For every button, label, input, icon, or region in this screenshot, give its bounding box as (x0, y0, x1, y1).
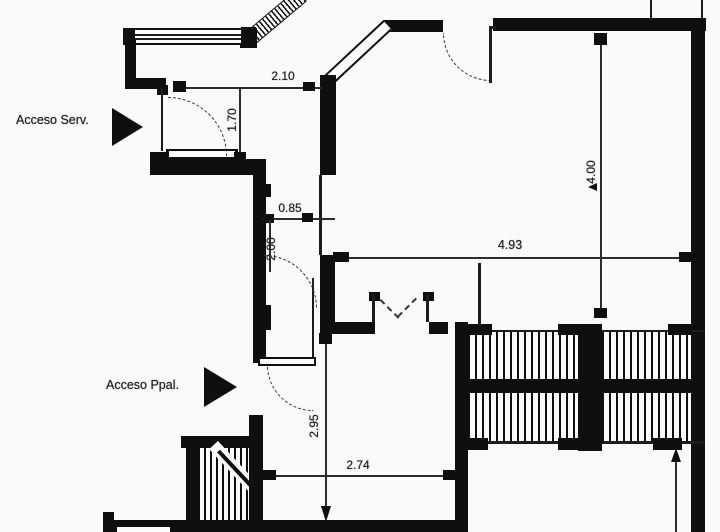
wall-right (691, 18, 705, 532)
window-glazing-line (133, 34, 246, 36)
door-jamb-hook (489, 26, 496, 29)
door-jamb-top-room (489, 26, 492, 83)
stairs-flight-upper-left (468, 332, 578, 380)
dimension-arrow-icon (671, 448, 681, 462)
dimension-tick (443, 470, 456, 480)
dimension-tick (679, 252, 692, 262)
dimension-tick (594, 308, 607, 318)
wall-stairwell-left (455, 322, 468, 532)
dimension-tick (594, 33, 607, 45)
dimension-line-2-95 (325, 333, 327, 513)
door-hinge-block-upper (253, 184, 271, 197)
dimension-tick (263, 470, 276, 480)
wall-bottom-stub (103, 512, 114, 532)
wall-stairwell-bottom-b (558, 438, 602, 450)
dimension-line-bottom-right (675, 462, 677, 532)
dimension-tick (303, 82, 315, 91)
door-swing-top-room (443, 33, 491, 81)
dimension-line-2-74 (263, 475, 453, 477)
dimension-label-2-74: 2.74 (337, 458, 379, 472)
door-swing-service (168, 97, 227, 156)
dimension-label-2-95: 2.95 (307, 406, 321, 446)
wall-line-top-notch-right (701, 0, 703, 19)
wall-line-top-notch-left (650, 0, 652, 19)
wall-hall-top-horizontal (156, 159, 266, 175)
dimension-label-1-70: 1.70 (225, 100, 239, 140)
stairs-flight-lower-left (468, 391, 578, 441)
door-hinge-block-lower (253, 305, 271, 330)
wall-corridor-vertical (320, 75, 336, 175)
window-bottom (117, 525, 170, 532)
label-acceso-serv: Acceso Serv. (16, 113, 111, 127)
dimension-tick (173, 81, 186, 92)
wall-stairwell-divider (578, 324, 602, 451)
wall-top-middle (383, 20, 443, 32)
dimension-label-2-00: 2.00 (264, 229, 278, 269)
dimension-line-4-93 (335, 257, 691, 259)
door-jamb-left (372, 294, 375, 322)
dimension-label-0-85: 0.85 (270, 201, 310, 215)
label-acceso-ppal: Acceso Ppal. (106, 378, 201, 392)
door-swing-entry (267, 365, 313, 411)
wall-entry-right (249, 415, 263, 532)
dimension-line-1-70 (239, 88, 241, 160)
dimension-line-2-10 (178, 87, 322, 89)
dimension-tick (319, 333, 332, 344)
wall-top-right (493, 18, 706, 31)
entry-threshold (258, 357, 316, 366)
door-swing-dash-right (397, 298, 417, 318)
wall-line-service-room (161, 88, 163, 151)
wall-stair-left (186, 448, 198, 523)
stairs-flight-upper-right (602, 332, 692, 380)
acceso-serv-arrow-icon (112, 108, 143, 146)
dimension-arrow-icon (321, 506, 331, 522)
window-glazing-line (133, 38, 246, 40)
stairs-flight-lower-right (602, 391, 692, 441)
wall-cap-window-right (241, 27, 256, 47)
floor-plan: 2.10 1.70 0.85 2.00 4.93 4.00 2.95 2.74 … (0, 0, 720, 532)
window-service-top (123, 28, 256, 45)
wall-line-corridor (319, 175, 322, 255)
acceso-ppal-arrow-icon (204, 367, 237, 407)
dimension-tick (333, 252, 349, 262)
dimension-arrow-icon (588, 183, 597, 191)
wall-stairwell-bottom-a (455, 438, 488, 450)
wall-room-bottom-right (429, 322, 448, 334)
dimension-label-4-93: 4.93 (487, 238, 533, 252)
dimension-tick (234, 152, 246, 163)
door-jamb-right (426, 294, 429, 322)
dimension-line-4-00 (600, 33, 602, 318)
dimension-label-2-10: 2.10 (262, 69, 304, 83)
wall-line-room-divider (478, 263, 481, 324)
